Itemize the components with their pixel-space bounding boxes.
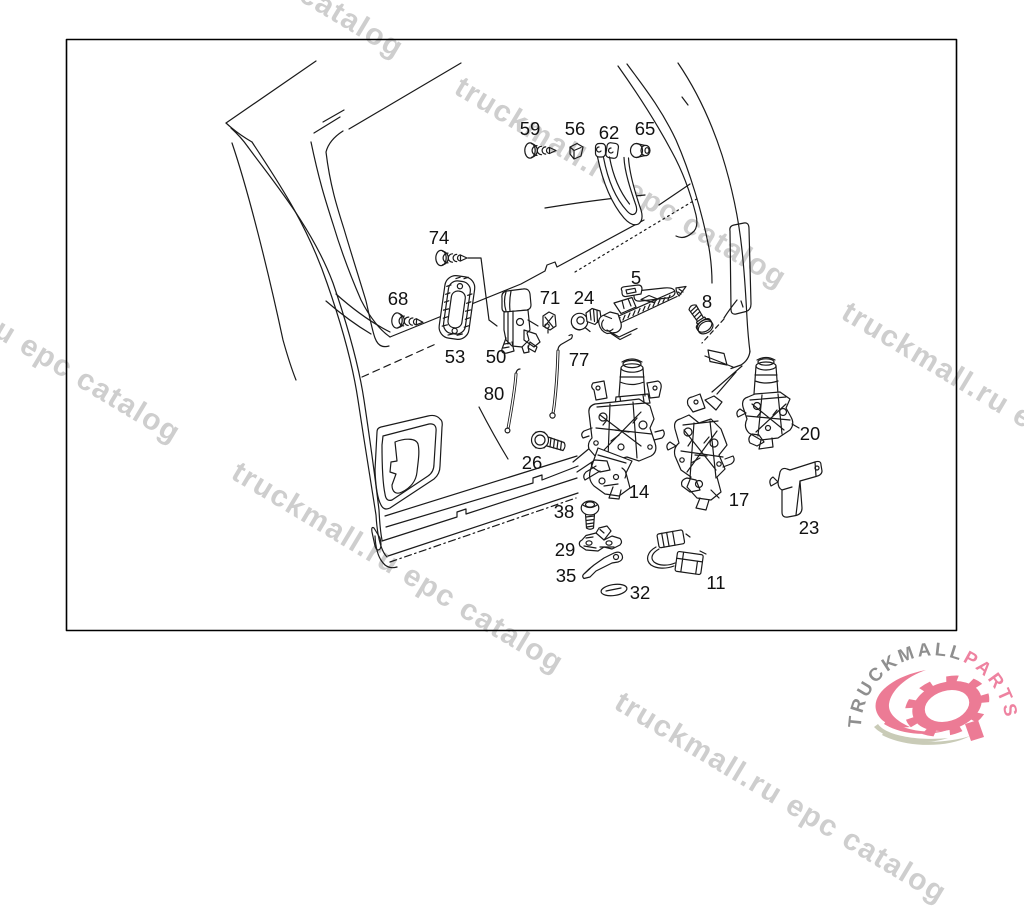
svg-text:11: 11	[706, 572, 725, 593]
svg-text:65: 65	[635, 118, 656, 139]
svg-text:80: 80	[484, 383, 505, 404]
svg-text:53: 53	[445, 346, 466, 367]
svg-text:50: 50	[486, 346, 507, 367]
svg-text:29: 29	[555, 539, 576, 560]
svg-text:77: 77	[569, 349, 590, 370]
svg-text:14: 14	[629, 481, 650, 502]
svg-text:8: 8	[702, 291, 712, 312]
svg-text:35: 35	[556, 565, 577, 586]
svg-text:TRUCKMALLPARTS: TRUCKMALLPARTS	[844, 640, 1023, 728]
svg-text:26: 26	[522, 452, 543, 473]
svg-text:71: 71	[540, 287, 561, 308]
svg-text:24: 24	[574, 287, 595, 308]
svg-text:32: 32	[630, 582, 651, 603]
svg-text:59: 59	[520, 118, 541, 139]
svg-text:38: 38	[554, 501, 575, 522]
svg-text:5: 5	[631, 267, 641, 288]
svg-text:62: 62	[599, 122, 620, 143]
svg-text:17: 17	[729, 489, 750, 510]
svg-text:20: 20	[800, 423, 821, 444]
svg-text:74: 74	[429, 227, 450, 248]
svg-text:68: 68	[388, 288, 409, 309]
svg-text:56: 56	[565, 118, 586, 139]
svg-text:23: 23	[799, 517, 820, 538]
